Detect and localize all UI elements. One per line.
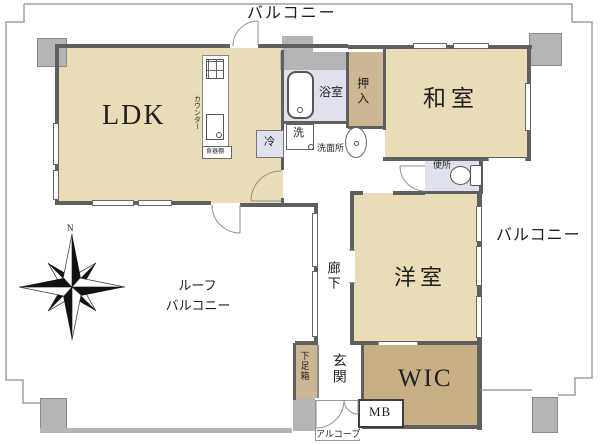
bathtub-drain-icon (297, 107, 303, 113)
entry-side-wall (293, 398, 315, 431)
toilet-door-arc (400, 166, 425, 191)
wall (57, 44, 230, 48)
sliding-door-wic (378, 342, 418, 345)
label-shoe-box: 下足箱 (299, 351, 308, 381)
label-toilet: 便所 (433, 161, 451, 170)
compass-rose (19, 234, 125, 340)
wall (281, 198, 284, 207)
label-balcony-top: バルコニー (247, 6, 337, 23)
label-ldk: LDK (102, 101, 166, 130)
roof-balcony-door-arc (212, 205, 240, 233)
window (92, 200, 134, 206)
wall (425, 191, 483, 194)
window (525, 83, 531, 131)
label-balcony-right: バルコニー (496, 228, 581, 245)
window (312, 213, 318, 267)
label-washroom: 洗面所 (317, 144, 344, 153)
label-washitsu: 和室 (423, 87, 479, 111)
window (453, 43, 489, 49)
label-alcove: アルコーブ (316, 430, 360, 439)
window (413, 43, 447, 49)
wall (295, 341, 318, 345)
basin-drain-icon (354, 141, 359, 146)
label-fridge: 冷 (264, 137, 275, 149)
toilet-bowl-icon (450, 166, 471, 185)
label-counter: カウンター (193, 95, 200, 130)
label-wic: WIC (398, 366, 453, 392)
balcony-door-arc (233, 21, 258, 46)
window (476, 206, 482, 242)
stove-icon (206, 59, 224, 79)
label-cabinet: 食器棚 (206, 149, 224, 155)
label-roof-balcony-2: バルコニー (148, 299, 248, 313)
toilet-tank-icon (470, 165, 482, 186)
pillar-top-left (37, 38, 67, 67)
window (53, 123, 59, 165)
wall (258, 44, 348, 48)
label-genkan: 玄関 (330, 353, 345, 385)
label-corridor: 廊下 (326, 261, 340, 291)
window (312, 271, 318, 337)
wall (353, 191, 363, 195)
sliding-door-washitsu (488, 158, 526, 161)
wall (383, 45, 386, 130)
wall (293, 343, 296, 400)
floor-plan: バルコニー バルコニー ルーフ バルコニー LDK 和室 洋室 WIC 押入 浴… (0, 0, 600, 445)
window (138, 200, 172, 206)
label-oshiire: 押入 (356, 77, 369, 107)
duct-slab (280, 52, 348, 70)
pillar-bottom-right (532, 397, 558, 433)
washer-drain-icon (308, 144, 314, 150)
window (476, 246, 482, 286)
pillar-top-right (529, 33, 562, 66)
label-bathroom: 浴室 (319, 86, 343, 99)
label-roof-balcony-1: ルーフ (155, 279, 240, 293)
wall (393, 191, 425, 195)
sink-drain-icon (216, 132, 222, 138)
window (476, 296, 482, 338)
window (53, 170, 59, 200)
wall (240, 203, 318, 207)
label-compass-north: N (67, 224, 74, 233)
wall (317, 345, 319, 398)
label-washer: 洗 (293, 128, 304, 140)
roof-balcony-south-wall (40, 428, 292, 433)
wall (346, 52, 349, 128)
wall (361, 345, 364, 400)
label-meter-box: MB (369, 405, 391, 419)
sliding-door-yoshitsu (349, 250, 355, 283)
label-yoshitsu: 洋室 (394, 266, 446, 289)
room-ldk (57, 48, 283, 203)
